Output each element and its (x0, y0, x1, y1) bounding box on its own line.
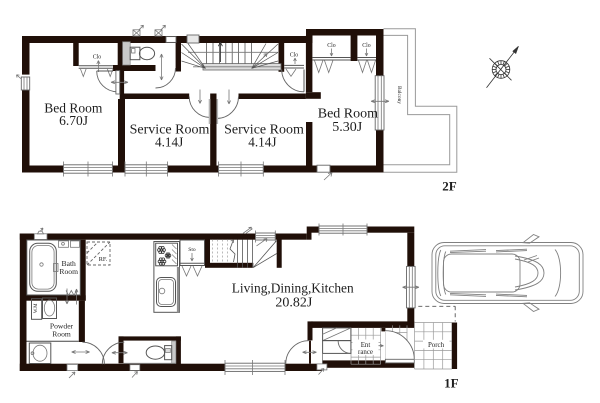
svg-text:Porch: Porch (428, 342, 445, 349)
svg-text:Room: Room (59, 267, 78, 276)
svg-text:Balcony: Balcony (396, 86, 402, 104)
svg-text:Ent: Ent (361, 342, 371, 349)
svg-text:6.70J: 6.70J (59, 113, 88, 128)
svg-text:Clo: Clo (93, 55, 101, 61)
svg-text:rance: rance (358, 349, 373, 356)
svg-text:RF.: RF. (99, 256, 108, 263)
svg-text:Room: Room (52, 329, 71, 338)
svg-text:5.30J: 5.30J (332, 120, 363, 135)
svg-text:4.14J: 4.14J (155, 135, 183, 150)
svg-text:Sto: Sto (188, 247, 196, 253)
svg-text:1F: 1F (444, 375, 459, 390)
svg-text:W.M: W.M (34, 303, 39, 313)
svg-text:2F: 2F (442, 178, 457, 193)
svg-text:4.14J: 4.14J (248, 135, 276, 150)
svg-text:Living,Dining,Kitchen: Living,Dining,Kitchen (232, 281, 354, 296)
svg-text:Clo: Clo (362, 43, 370, 49)
svg-text:Clo: Clo (327, 43, 335, 49)
svg-text:Clo: Clo (290, 53, 298, 59)
svg-text:20.82J: 20.82J (275, 296, 313, 311)
